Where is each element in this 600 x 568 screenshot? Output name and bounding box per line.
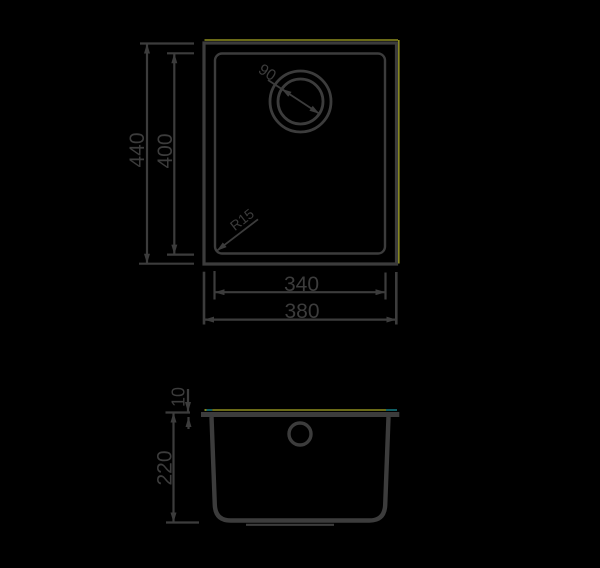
svg-text:380: 380 [284, 300, 319, 323]
svg-text:10: 10 [168, 387, 188, 407]
svg-text:220: 220 [154, 450, 177, 485]
svg-text:400: 400 [154, 133, 177, 168]
svg-text:440: 440 [126, 132, 149, 167]
svg-text:340: 340 [284, 273, 319, 296]
